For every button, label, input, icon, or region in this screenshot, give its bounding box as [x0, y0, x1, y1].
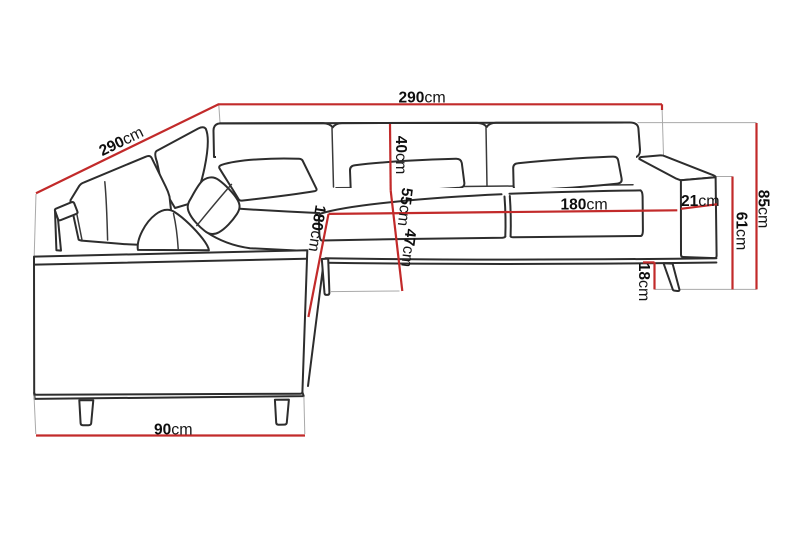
svg-text:180cm: 180cm: [561, 197, 608, 214]
svg-text:40cm: 40cm: [392, 136, 409, 175]
svg-text:61cm: 61cm: [733, 212, 750, 251]
svg-text:18cm: 18cm: [635, 263, 652, 302]
svg-text:85cm: 85cm: [755, 190, 772, 229]
svg-text:90cm: 90cm: [154, 422, 193, 439]
svg-text:21cm: 21cm: [681, 193, 720, 210]
svg-text:290cm: 290cm: [399, 90, 446, 107]
